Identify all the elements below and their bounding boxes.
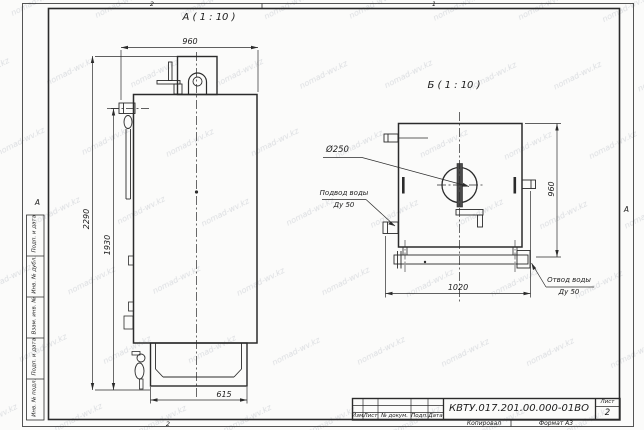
outlet-label: Отвод воды bbox=[541, 277, 597, 284]
drawing-designation: КВТУ.017.201.00.000-01ВО bbox=[443, 398, 595, 420]
dim-flue-diameter: Ø250 bbox=[326, 146, 349, 155]
damper-lever bbox=[157, 81, 180, 85]
back-view bbox=[383, 112, 536, 302]
linework-layer bbox=[0, 0, 644, 430]
col-date: Дата bbox=[428, 414, 443, 420]
front-view-dimensions bbox=[91, 46, 258, 404]
dim-front-width: 960 bbox=[170, 38, 210, 46]
col-sign: Подп. bbox=[411, 414, 428, 420]
dim-back-height: 960 bbox=[548, 169, 556, 209]
col-doc: № докум. bbox=[378, 414, 411, 420]
col-list: Лист bbox=[363, 414, 378, 420]
back-view-title: Б ( 1 : 10 ) bbox=[404, 81, 504, 91]
dim-overall-height: 2290 bbox=[83, 199, 91, 239]
side-handle bbox=[124, 116, 132, 129]
inlet-dn-label: Ду 50 bbox=[318, 202, 370, 209]
margin-box-label: Подп. и дата bbox=[32, 336, 38, 376]
zone-marker-right: А bbox=[620, 206, 633, 214]
zone-top-left: 2 bbox=[146, 1, 158, 8]
zone-top-right: 1 bbox=[428, 1, 440, 8]
dim-ports-span: 1020 bbox=[436, 284, 480, 292]
dim-body-height: 1930 bbox=[104, 225, 112, 265]
upper-port bbox=[384, 134, 398, 142]
base-stand bbox=[151, 343, 248, 386]
margin-box-label: Взам. инв. № bbox=[32, 295, 38, 335]
drawing-sheet: nomad-wv.kz nomad-wv.kz bbox=[0, 0, 644, 430]
lifting-eye bbox=[189, 73, 207, 94]
footer-format: Формат А3 bbox=[524, 421, 588, 427]
sheet-frame bbox=[23, 4, 634, 427]
footer-copy: Копировал bbox=[452, 421, 516, 427]
margin-box-label: Инв. № подл. bbox=[32, 377, 38, 417]
margin-box-label: Инв. № дубл. bbox=[32, 254, 38, 294]
margin-box-label: Подп. и дата bbox=[32, 213, 38, 253]
dim-base-width: 615 bbox=[203, 391, 245, 399]
right-port bbox=[522, 180, 536, 189]
inlet-label: Подвод воды bbox=[318, 190, 370, 197]
outlet-dn-label: Ду 50 bbox=[541, 289, 597, 296]
col-izm: Изм. bbox=[352, 414, 363, 420]
front-view bbox=[111, 52, 257, 398]
zone-bottom-left: 2 bbox=[162, 421, 174, 428]
front-view-title: А ( 1 : 10 ) bbox=[159, 13, 259, 23]
damper-handle bbox=[456, 210, 483, 216]
back-view-dimensions bbox=[322, 124, 594, 298]
manifold-pipe bbox=[394, 255, 528, 264]
sheet-label: Лист bbox=[595, 400, 620, 406]
sheet-number: 2 bbox=[595, 406, 620, 420]
zone-marker-left: А bbox=[31, 199, 44, 207]
